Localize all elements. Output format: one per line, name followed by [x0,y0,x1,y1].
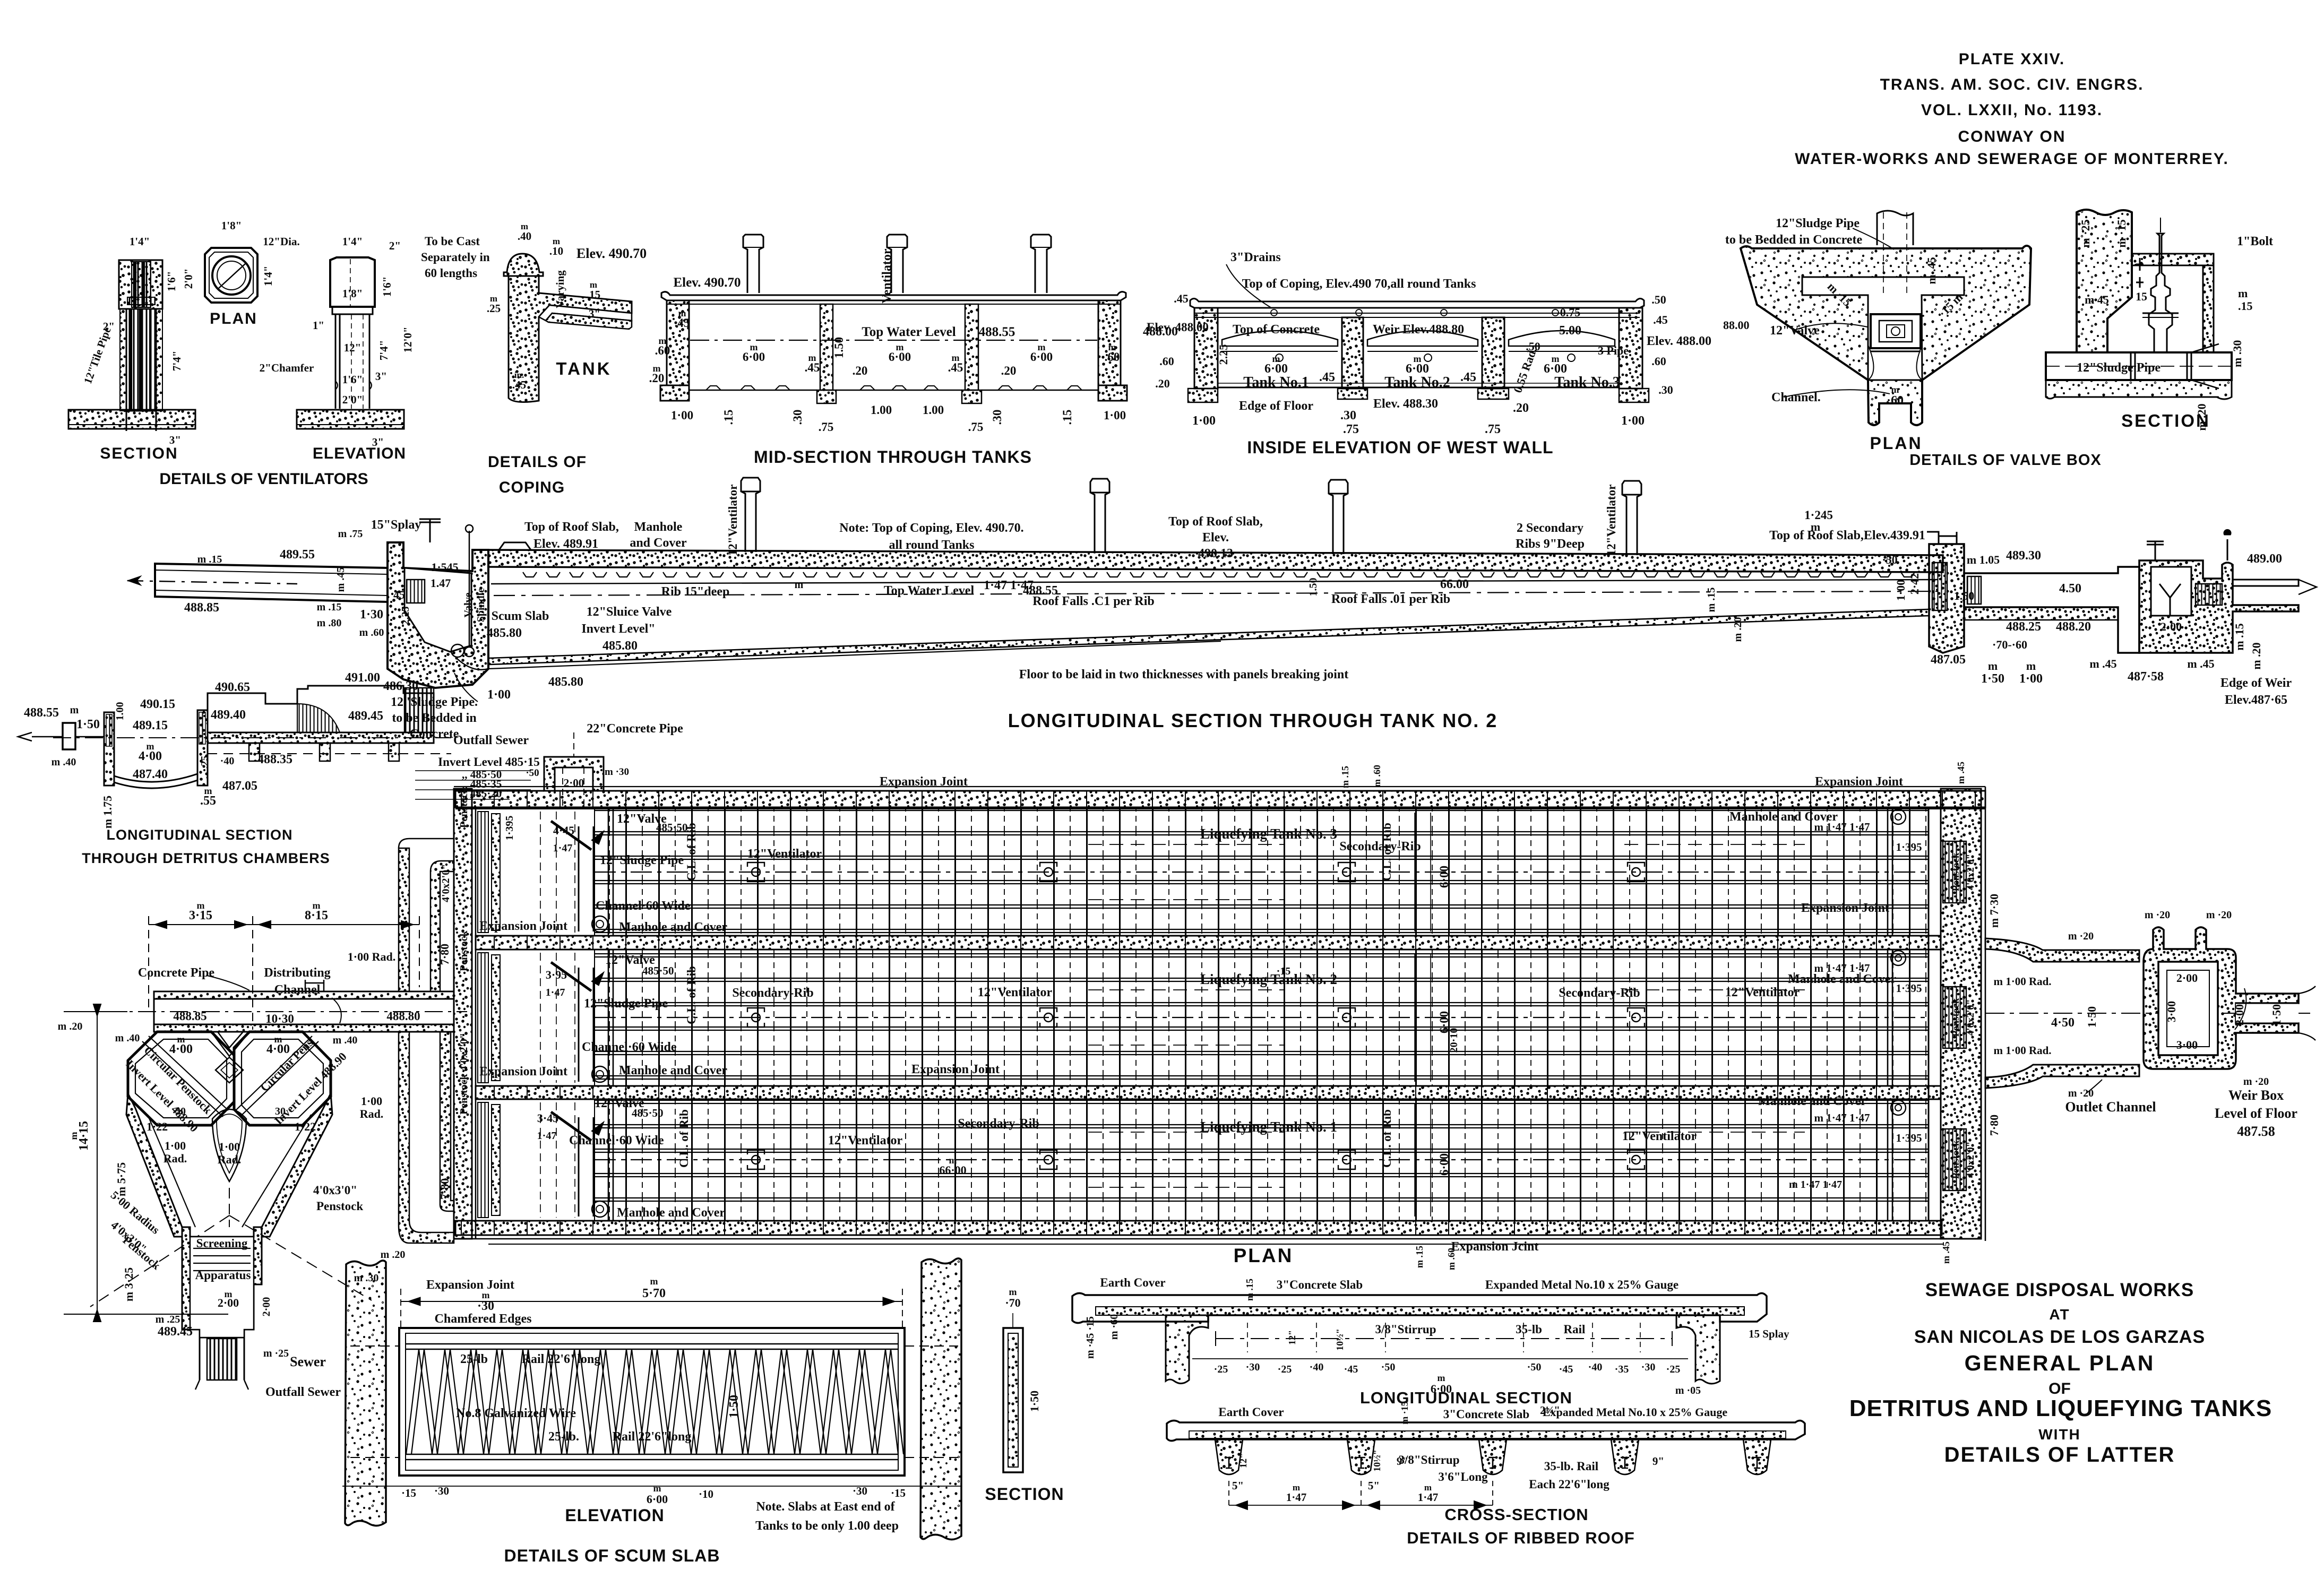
svg-text:m .45: m .45 [2187,657,2214,670]
svg-text:7'4": 7'4" [377,340,390,361]
svg-text:Secondary-Rib: Secondary-Rib [732,986,813,1000]
svg-text:m: m [70,704,79,716]
svg-text:25-lb.: 25-lb. [548,1430,579,1444]
svg-text:1·50: 1·50 [1981,672,2004,686]
svg-text:485·50: 485·50 [632,1107,664,1119]
svg-text:Manhole and Cover: Manhole and Cover [1788,972,1896,986]
svg-text:m ·20: m ·20 [2243,1076,2269,1088]
svg-text:Top of Coping, Elev.490 70,all: Top of Coping, Elev.490 70,all round Tan… [1242,277,1476,291]
svg-text:6·00: 6·00 [889,350,911,364]
svg-text:Top of Concrete: Top of Concrete [1233,323,1320,337]
svg-text:12": 12" [1238,1453,1249,1468]
svg-text:m 1·47 1·47: m 1·47 1·47 [1789,1179,1842,1190]
svg-text:m 1.75: m 1.75 [101,796,114,829]
svg-text:Penstock: Penstock [458,930,470,971]
svg-text:.45: .45 [675,316,690,330]
svg-text:490.65: 490.65 [215,680,250,694]
svg-text:Outfall Sewer: Outfall Sewer [453,734,529,747]
svg-text:DETAILS OF LATTER: DETAILS OF LATTER [1944,1443,2175,1466]
svg-text:Manhole and Cover: Manhole and Cover [1758,1094,1866,1108]
svg-text:2 Secondary: 2 Secondary [1517,521,1583,535]
svg-text:Floor to be laid in two thickn: Floor to be laid in two thicknesses with… [1019,668,1349,681]
svg-text:487.05: 487.05 [1931,653,1966,667]
svg-text:.60: .60 [1651,355,1666,368]
svg-text:m .15: m .15 [1244,1279,1255,1301]
svg-text:m .20: m .20 [2250,642,2263,669]
svg-text:Elev. 488.30: Elev. 488.30 [1373,397,1438,411]
svg-text:ELEVATION: ELEVATION [565,1506,664,1525]
svg-text:m 1·00 Rad.: m 1·00 Rad. [1993,1044,2051,1057]
svg-text:m .45: m .45 [335,567,347,592]
svg-text:2.25: 2.25 [400,607,411,625]
svg-text:·30: ·30 [1246,1361,1260,1373]
svg-text:.50: .50 [1651,293,1666,306]
svg-text:1·47: 1·47 [553,842,573,854]
svg-text:m .40: m .40 [115,1032,140,1044]
svg-text:m .80: m .80 [317,617,342,629]
svg-text:4'0x3'0": 4'0x3'0" [313,1184,357,1197]
svg-text:m .45: m .45 [2089,657,2116,670]
svg-text:.60: .60 [655,344,670,357]
svg-text:·25: ·25 [1214,1364,1228,1375]
svg-text:2": 2" [389,239,401,252]
svg-text:Expansion Joint: Expansion Joint [880,775,968,789]
svg-text:1·50: 1·50 [2270,1004,2283,1025]
svg-text:1·00: 1·00 [487,688,511,702]
svg-text:m 1·00 Rad.: m 1·00 Rad. [1993,975,2051,988]
svg-text:3/8"Stirrup: 3/8"Stirrup [1375,1323,1436,1336]
svg-text:Rail 22'6"long: Rail 22'6"long [613,1430,692,1444]
svg-text:12"Ventilator: 12"Ventilator [726,485,739,556]
svg-text:.75: .75 [1343,422,1359,436]
svg-text:·50: ·50 [1527,1361,1542,1373]
svg-text:.50: .50 [1526,340,1540,353]
svg-text:Concrete Pipe: Concrete Pipe [138,966,215,980]
svg-text:2·00: 2·00 [2176,971,2198,985]
svg-text:m: m [1272,353,1280,364]
svg-text:m .15: m .15 [1706,588,1717,612]
svg-text:12"Ventilator: 12"Ventilator [747,847,822,861]
svg-text:35-lb: 35-lb [1516,1323,1542,1336]
svg-text:PLAN: PLAN [210,310,257,327]
svg-text:6·00: 6·00 [1438,866,1451,888]
svg-text:.20: .20 [649,372,665,385]
svg-text:1·245: 1·245 [1804,508,1833,522]
svg-text:.45: .45 [1460,370,1476,384]
svg-text:.75: .75 [1485,422,1501,436]
svg-text:m .60: m .60 [359,627,384,639]
svg-text:488.20: 488.20 [2056,620,2091,634]
svg-text:Elev.: Elev. [1202,531,1229,545]
svg-text:Penstock: Penstock [1950,852,1961,891]
svg-text:1.00: 1.00 [871,403,892,417]
svg-text:to be Bedded in Concrete: to be Bedded in Concrete [1725,233,1863,247]
svg-text:DETRITUS AND LIQUEFYING TANKS: DETRITUS AND LIQUEFYING TANKS [1849,1395,2273,1421]
svg-text:4'0x2'0": 4'0x2'0" [1965,854,1976,891]
svg-text:·15: ·15 [401,1487,416,1499]
svg-text:m 7·30: m 7·30 [1987,894,2001,928]
svg-text:.45: .45 [512,378,526,391]
svg-text:C.L. of Rib: C.L. of Rib [685,966,698,1024]
svg-text:Penstock: Penstock [1950,1140,1961,1179]
svg-text:0.75: 0.75 [1560,306,1581,319]
svg-text:7·80: 7·80 [438,1178,451,1200]
svg-text:m: m [482,1290,490,1300]
svg-text:3·95: 3·95 [546,968,567,981]
svg-text:m: m [197,900,205,911]
svg-text:488.00: 488.00 [1143,325,1178,339]
svg-text:m: m [795,579,804,591]
svg-text:3": 3" [589,307,600,320]
svg-text:1'8": 1'8" [342,287,363,300]
svg-text:m: m [1424,1482,1432,1493]
svg-text:10½": 10½" [1335,1328,1345,1351]
svg-text:m: m [2026,659,2036,672]
svg-text:Top of Roof Slab,: Top of Roof Slab, [524,520,619,534]
svg-text:m: m [2238,287,2248,300]
svg-text:Expansion Joint: Expansion Joint [1815,775,1903,789]
svg-text:490.15: 490.15 [140,697,175,711]
svg-text:m: m [1811,520,1820,533]
svg-text:6·00: 6·00 [743,350,765,364]
svg-text:12"Ventilator: 12"Ventilator [1605,485,1618,556]
svg-text:Expansion Joint: Expansion Joint [479,1065,567,1079]
svg-text:1·00: 1·00 [1192,414,1216,428]
svg-text:488.25: 488.25 [2006,620,2041,634]
svg-text:DETAILS OF RIBBED ROOF: DETAILS OF RIBBED ROOF [1407,1529,1635,1547]
svg-text:12": 12" [1287,1330,1297,1345]
svg-text:488.55: 488.55 [979,325,1015,339]
svg-text:Roof Falls .01 per Rib: Roof Falls .01 per Rib [1331,592,1450,606]
svg-text:PLAN: PLAN [1870,434,1922,453]
svg-text:Valve: Valve [462,592,474,617]
svg-text:Invert Level 485·15: Invert Level 485·15 [438,755,540,769]
svg-text:5": 5" [1232,1479,1244,1492]
svg-text:15: 15 [2136,290,2147,303]
svg-text:Separately in: Separately in [421,251,490,264]
svg-text:No.8 Galvanized Wire: No.8 Galvanized Wire [456,1407,576,1420]
svg-text:12"Sluice Valve: 12"Sluice Valve [587,605,672,619]
svg-text:m ·15: m ·15 [1399,1401,1410,1425]
svg-text:3"Drains: 3"Drains [1230,251,1281,264]
svg-text:Weir Box: Weir Box [2228,1088,2284,1103]
svg-text:PLAN: PLAN [1234,1245,1294,1266]
svg-text:.45: .45 [1319,370,1335,384]
svg-text:Manhole and Cover: Manhole and Cover [619,920,727,934]
svg-text:m .15: m .15 [1340,766,1350,788]
svg-text:m .15: m .15 [197,554,222,565]
svg-text:.30: .30 [1340,409,1356,422]
svg-text:1·00: 1·00 [1894,580,1907,601]
svg-text:3 Pipe: 3 Pipe [1598,344,1629,357]
svg-text:.75: .75 [968,420,984,434]
svg-text:1·00: 1·00 [1104,409,1126,422]
svg-text:m .60: m .60 [1372,765,1382,787]
svg-text:1'4": 1'4" [342,235,363,248]
svg-text:.75: .75 [819,420,834,434]
svg-text:1·00: 1·00 [361,1094,382,1108]
svg-text:7'4": 7'4" [170,351,183,372]
svg-text:m ·45 ·15: m ·45 ·15 [1084,1316,1096,1359]
svg-text:Expansion Joint: Expansion Joint [1801,901,1889,915]
svg-text:2·00: 2·00 [261,1297,272,1317]
svg-text:488.80: 488.80 [386,1010,420,1023]
svg-text:489.45: 489.45 [348,709,383,723]
svg-text:2'0": 2'0" [182,269,195,289]
svg-text:m .45: m .45 [1925,257,1938,284]
svg-text:12"Sludge Pipe: 12"Sludge Pipe [600,853,684,867]
svg-text:1'6": 1'6" [381,277,393,297]
svg-text:2'0": 2'0" [342,393,363,406]
svg-text:·60: ·60 [1887,394,1904,408]
svg-text:DETAILS OF: DETAILS OF [488,453,587,471]
svg-text:m: m [1009,1287,1017,1297]
svg-text:1·00: 1·00 [2019,672,2043,686]
svg-text:1'4": 1'4" [130,235,150,248]
svg-text:489.45: 489.45 [158,1325,193,1339]
svg-text:m ·20: m ·20 [2068,1088,2094,1099]
svg-text:C.L. of Rib: C.L. of Rib [677,1109,691,1168]
svg-text:m ·30: m ·30 [605,766,629,778]
svg-text:DETAILS OF VENTILATORS: DETAILS OF VENTILATORS [159,470,368,488]
svg-text:6·00: 6·00 [647,1493,668,1506]
svg-text:1·00: 1·00 [671,409,693,422]
svg-text:487.05: 487.05 [222,779,257,793]
svg-text:Manhole and Cover: Manhole and Cover [1729,810,1838,824]
svg-text:CROSS-SECTION: CROSS-SECTION [1444,1505,1588,1524]
svg-text:m ·25: m ·25 [2079,219,2092,247]
svg-text:6·00: 6·00 [1030,350,1053,364]
svg-text:COPING: COPING [499,479,565,496]
svg-text:488.35: 488.35 [257,753,292,766]
svg-text:.30: .30 [1658,383,1673,396]
svg-text:2"Chamfer: 2"Chamfer [260,361,314,374]
svg-text:m: m [1552,353,1560,364]
svg-text:1·395: 1·395 [1896,1132,1922,1144]
svg-text:Secondary-Rib: Secondary-Rib [958,1117,1039,1131]
svg-text:1·395: 1·395 [1896,841,1922,853]
svg-text:AT: AT [2049,1306,2070,1323]
svg-text:·25: ·25 [1278,1364,1292,1375]
svg-text:Level of Floor: Level of Floor [2215,1106,2297,1121]
svg-text:Top Water Level: Top Water Level [884,584,975,598]
svg-text:LONGITUDINAL SECTION: LONGITUDINAL SECTION [106,827,292,843]
svg-text:3·45: 3·45 [537,1111,558,1125]
svg-text:35-lb. Rail: 35-lb. Rail [1544,1460,1598,1473]
svg-text:Top of Roof Slab,: Top of Roof Slab, [1168,515,1263,529]
svg-text:2·00: 2·00 [2161,620,2182,633]
svg-text:m: m [949,1155,957,1166]
svg-text:1'6": 1'6" [165,271,178,292]
svg-text:1·00: 1·00 [165,1139,186,1152]
svg-text:Varying: Varying [554,270,566,308]
svg-text:Edge of Weir: Edge of Weir [2220,676,2292,690]
svg-text:489.00: 489.00 [2247,552,2282,566]
svg-text:487.58: 487.58 [2237,1124,2275,1139]
svg-text:Expansion Joint: Expansion Joint [911,1063,1000,1076]
svg-text:m: m [274,1034,282,1045]
svg-text:·50: ·50 [526,767,539,779]
svg-text:m: m [204,786,212,796]
svg-text:Penstock: Penstock [458,787,470,828]
svg-text:·30: ·30 [477,1299,494,1313]
svg-text:.45: .45 [1653,313,1668,326]
svg-text:2·42: 2·42 [1908,573,1921,594]
svg-text:Rail: Rail [1564,1323,1586,1336]
svg-text:1'6": 1'6" [342,373,363,386]
svg-text:m: m [147,741,154,752]
svg-text:2·00: 2·00 [564,777,584,789]
svg-text:Tank No.1: Tank No.1 [1243,374,1309,391]
svg-text:Rad.: Rad. [218,1153,242,1166]
svg-text:.25: .25 [487,302,501,315]
svg-text:m .15: m .15 [2233,623,2246,650]
svg-text:DETAILS OF VALVE BOX: DETAILS OF VALVE BOX [1909,452,2102,469]
svg-text:m .40: m .40 [333,1034,358,1046]
svg-text:Earth Cover: Earth Cover [1218,1405,1284,1419]
svg-text:CONWAY ON: CONWAY ON [1958,128,2065,145]
svg-text:.60: .60 [1105,350,1120,364]
svg-text:12"Ventilator: 12"Ventilator [1725,986,1800,999]
svg-text:Apparatus: Apparatus [195,1269,251,1282]
svg-text:489.30: 489.30 [2006,549,2041,563]
svg-text:5": 5" [1368,1479,1380,1492]
svg-text:Manhole: Manhole [634,520,683,534]
svg-text:488.85: 488.85 [173,1010,206,1023]
svg-text:C.L. of Rib: C.L. of Rib [1380,1109,1393,1168]
svg-text:THROUGH DETRITUS CHAMBERS: THROUGH DETRITUS CHAMBERS [82,850,330,866]
svg-text:.45: .45 [948,361,963,374]
svg-text:m: m [313,900,321,911]
svg-text:Ventilator: Ventilator [880,248,894,303]
svg-text:20·10: 20·10 [1448,1028,1460,1053]
svg-text:m ·20: m ·20 [2145,909,2170,921]
svg-text:1·47: 1·47 [1418,1491,1439,1504]
svg-text:m .20: m .20 [1732,617,1744,642]
svg-text:Expansion Joint: Expansion Joint [479,919,567,933]
svg-text:1·22: 1·22 [147,1120,168,1133]
svg-text:m: m [1414,353,1422,364]
svg-text:Weir Elev.488.80: Weir Elev.488.80 [1373,323,1464,337]
svg-text:Rad.: Rad. [163,1152,187,1165]
svg-text:WATER-WORKS AND SEWERAGE OF MO: WATER-WORKS AND SEWERAGE OF MONTERREY. [1795,150,2229,168]
svg-text:Channel: Channel [274,983,321,997]
svg-text:Rad.: Rad. [360,1107,384,1120]
svg-text:m .15: m .15 [317,601,342,613]
svg-text:m: m [68,1132,79,1140]
svg-text:12"Sludge Pipe: 12"Sludge Pipe [2077,361,2161,375]
svg-text:m ·60: m ·60 [1108,1314,1120,1340]
svg-text:·30: ·30 [1641,1361,1656,1373]
svg-text:1"Bolt: 1"Bolt [2237,235,2273,248]
svg-text:.15: .15 [587,288,600,301]
svg-text:1·50: 1·50 [727,1395,741,1418]
svg-text:m .20: m .20 [58,1021,83,1032]
svg-text:Secondary-Rib: Secondary-Rib [1339,840,1421,853]
svg-text:30: 30 [275,1106,286,1117]
svg-text:9": 9" [1652,1455,1664,1468]
svg-text:.10: .10 [549,245,563,257]
svg-text:Liquefying Tank No. 2: Liquefying Tank No. 2 [1200,971,1337,987]
svg-text:m .15: m .15 [1414,1246,1425,1268]
svg-text:.15: .15 [2238,299,2253,313]
svg-text:Rail 22'6"long: Rail 22'6"long [522,1352,601,1366]
svg-text:488.85: 488.85 [184,601,219,615]
svg-text:5·70: 5·70 [642,1287,666,1300]
svg-text:m 1.05: m 1.05 [1967,553,2000,566]
svg-text:·50: ·50 [1381,1361,1396,1373]
svg-text:m .60: m .60 [1446,1248,1457,1270]
svg-text:m .45: m .45 [1941,1241,1951,1264]
svg-text:Outfall Sewer: Outfall Sewer [265,1385,341,1399]
svg-text:4·45: 4·45 [553,824,574,837]
svg-text:1·50: 1·50 [76,718,100,731]
svg-text:.40: .40 [518,230,531,243]
svg-text:·15: ·15 [891,1487,906,1499]
svg-text:·45: ·45 [1559,1364,1573,1375]
svg-text:DETAILS OF SCUM SLAB: DETAILS OF SCUM SLAB [504,1546,720,1565]
svg-text:C.L. of Rib: C.L. of Rib [685,823,698,881]
svg-text:Rib 15"deep: Rib 15"deep [661,585,730,599]
svg-text:Elev. 489.91: Elev. 489.91 [533,537,598,551]
svg-text:Chamfered Edges: Chamfered Edges [435,1312,532,1326]
svg-text:·35: ·35 [1615,1364,1629,1375]
svg-text:TANK: TANK [556,359,612,378]
svg-text:Channel·60 Wide: Channel·60 Wide [596,899,691,913]
svg-text:Earth Cover: Earth Cover [1100,1276,1165,1289]
svg-text:·70: ·70 [1005,1296,1020,1309]
svg-text:1.50: 1.50 [832,337,846,358]
svg-text:LONGITUDINAL SECTION THROUGH T: LONGITUDINAL SECTION THROUGH TANK NO. 2 [1008,710,1498,731]
svg-text:Manhole and Cover: Manhole and Cover [619,1064,727,1077]
svg-text:15"Splay: 15"Splay [371,518,421,532]
svg-text:Penstock 4'0x2'0": Penstock 4'0x2'0" [458,1033,470,1115]
svg-text:1·00 Rad.: 1·00 Rad. [348,950,395,963]
svg-text:Manhole and Cover: Manhole and Cover [617,1206,725,1220]
svg-text:SECTION: SECTION [985,1485,1064,1504]
svg-text:Top Water Level: Top Water Level [862,325,956,339]
svg-text:·40: ·40 [1310,1361,1324,1373]
svg-text:m ·15: m ·15 [2115,219,2128,247]
svg-text:·30: ·30 [853,1485,867,1497]
svg-text:12"Dia.: 12"Dia. [263,235,299,248]
svg-text:.25: .25 [199,756,211,769]
svg-text:Elev. 490.70: Elev. 490.70 [576,246,647,261]
svg-text:485.80: 485.80 [487,626,522,640]
svg-text:488.55: 488.55 [24,706,59,720]
svg-text:.30: .30 [991,410,1004,425]
svg-text:·40: ·40 [1588,1361,1603,1373]
svg-text:1·395: 1·395 [504,816,515,841]
svg-text:Expanded Metal No.10 x 25% Gau: Expanded Metal No.10 x 25% Gauge [1485,1278,1679,1291]
svg-text:.15: .15 [722,410,735,425]
svg-text:m: m [1293,1482,1300,1493]
svg-text:489.40: 489.40 [211,708,246,722]
svg-text:10½": 10½" [1372,1450,1382,1472]
svg-text:1·545: 1·545 [431,560,458,574]
svg-text:3·00: 3·00 [2165,1001,2178,1022]
svg-text:1·30: 1·30 [360,608,383,622]
svg-text:·10: ·10 [699,1488,713,1500]
svg-text:Penstock: Penstock [316,1200,363,1213]
svg-text:7·80: 7·80 [438,944,451,965]
svg-text:Screening: Screening [196,1237,248,1250]
svg-text:25-lb: 25-lb [460,1352,488,1366]
svg-text:m: m [521,221,528,231]
svg-text:Note: Top of Coping, Elev. 490: Note: Top of Coping, Elev. 490.70. [839,521,1023,535]
svg-text:30: 30 [175,1106,186,1117]
svg-text:1.47: 1.47 [431,576,451,590]
